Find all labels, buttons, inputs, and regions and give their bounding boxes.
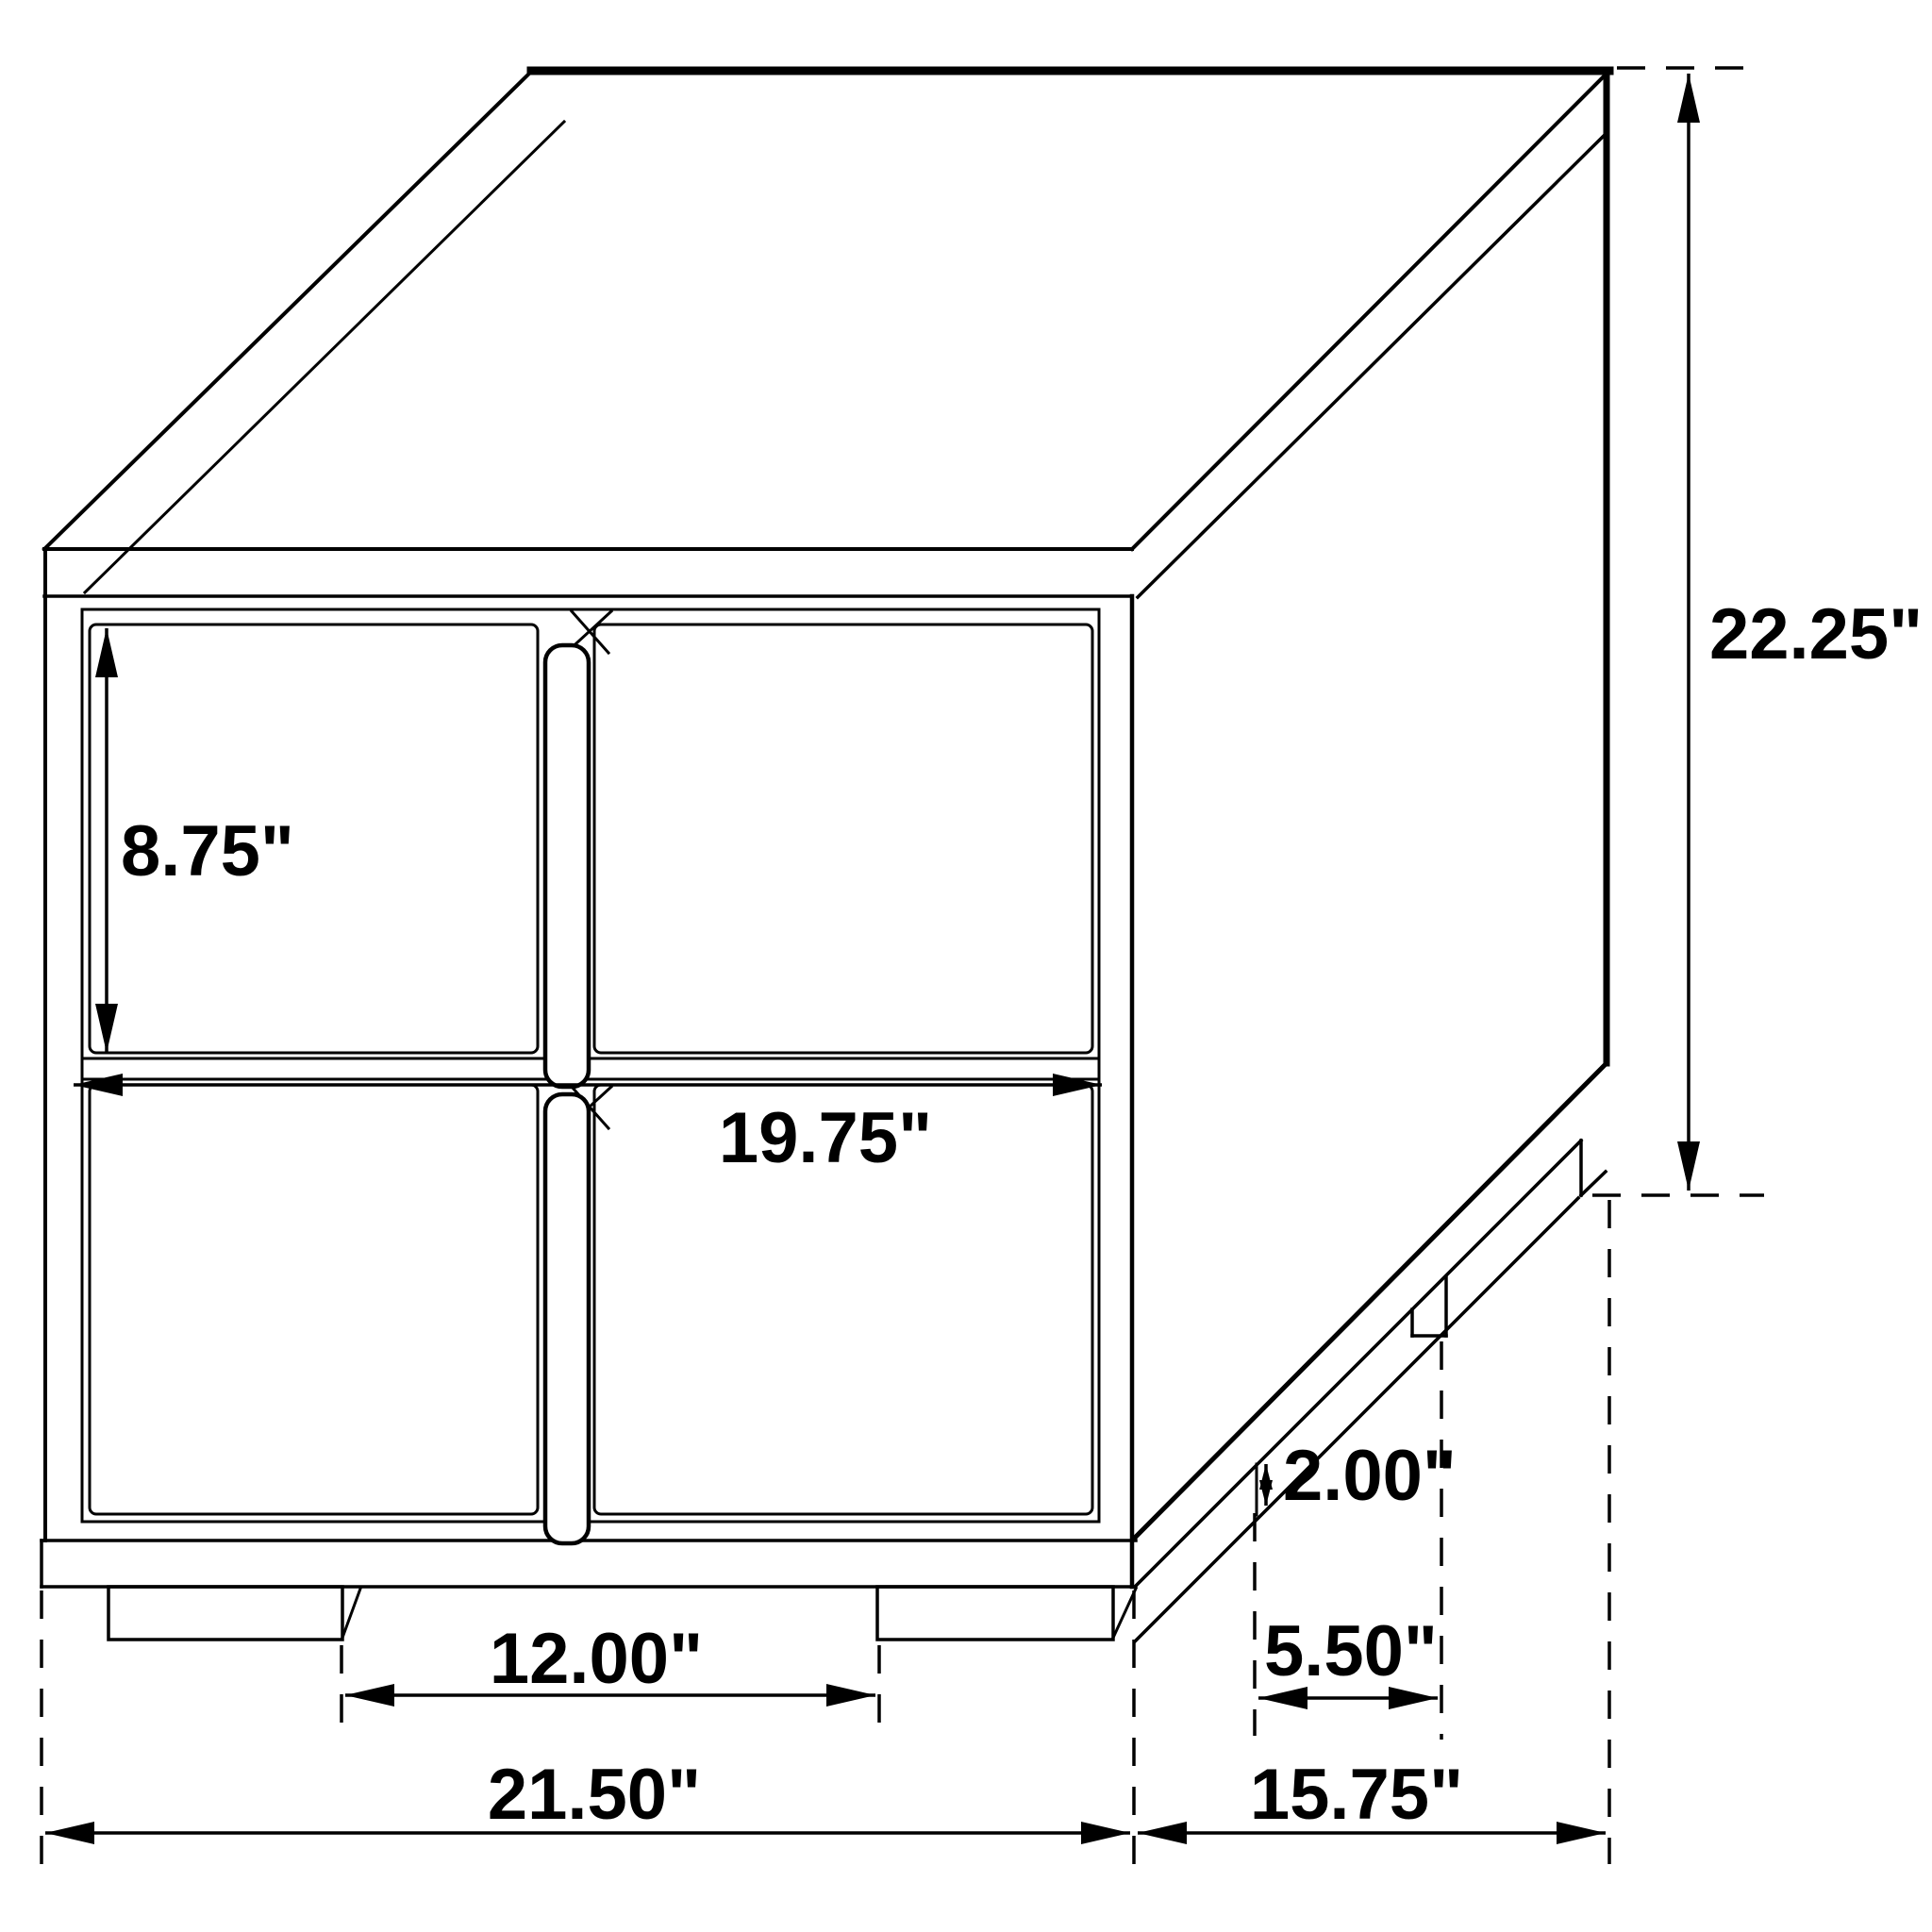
diagram-canvas: 8.75" 19.75" 22.25" 2.00" 5.50" 12.00" bbox=[0, 0, 1932, 1932]
drawer-panel-bottom-left bbox=[90, 1085, 538, 1514]
drawer-panels bbox=[90, 625, 1092, 1514]
dim-label-leg-height: 2.00" bbox=[1283, 1436, 1457, 1516]
drawer-panel-top-right bbox=[594, 625, 1092, 1053]
handle-top-drawer bbox=[545, 645, 589, 1087]
dimension-annotations: 8.75" 19.75" 22.25" 2.00" 5.50" 12.00" bbox=[42, 68, 1923, 1864]
nightstand-dimension-diagram: 8.75" 19.75" 22.25" 2.00" 5.50" 12.00" bbox=[0, 0, 1932, 1932]
front-right-leg bbox=[877, 1587, 1113, 1640]
top-face bbox=[44, 70, 1609, 1063]
dimension-drawer-height: 8.75" bbox=[107, 628, 294, 1053]
dim-label-overall-depth: 15.75" bbox=[1250, 1755, 1463, 1835]
dimension-overall-height: 22.25" bbox=[1689, 74, 1923, 1191]
extension-lines bbox=[42, 68, 1764, 1864]
dim-label-drawer-height: 8.75" bbox=[121, 811, 294, 891]
dim-label-front-width: 19.75" bbox=[719, 1098, 932, 1178]
dimension-overall-depth: 15.75" bbox=[1138, 1755, 1606, 1835]
dim-label-side-leg-spacing: 5.50" bbox=[1264, 1611, 1438, 1691]
dim-label-overall-width: 21.50" bbox=[488, 1755, 701, 1835]
side-plinth bbox=[1132, 1063, 1607, 1641]
dimension-overall-width: 21.50" bbox=[45, 1755, 1130, 1835]
dimension-front-leg-spacing: 12.00" bbox=[345, 1619, 875, 1699]
dimension-leg-height: 2.00" bbox=[1266, 1436, 1457, 1516]
handle-bottom-drawer bbox=[545, 1094, 589, 1543]
dimension-side-leg-spacing: 5.50" bbox=[1258, 1611, 1438, 1698]
front-left-leg bbox=[108, 1587, 342, 1640]
drawer-handles bbox=[545, 611, 611, 1543]
dim-label-front-leg-spacing: 12.00" bbox=[490, 1619, 703, 1699]
dim-label-overall-height: 22.25" bbox=[1709, 594, 1923, 675]
